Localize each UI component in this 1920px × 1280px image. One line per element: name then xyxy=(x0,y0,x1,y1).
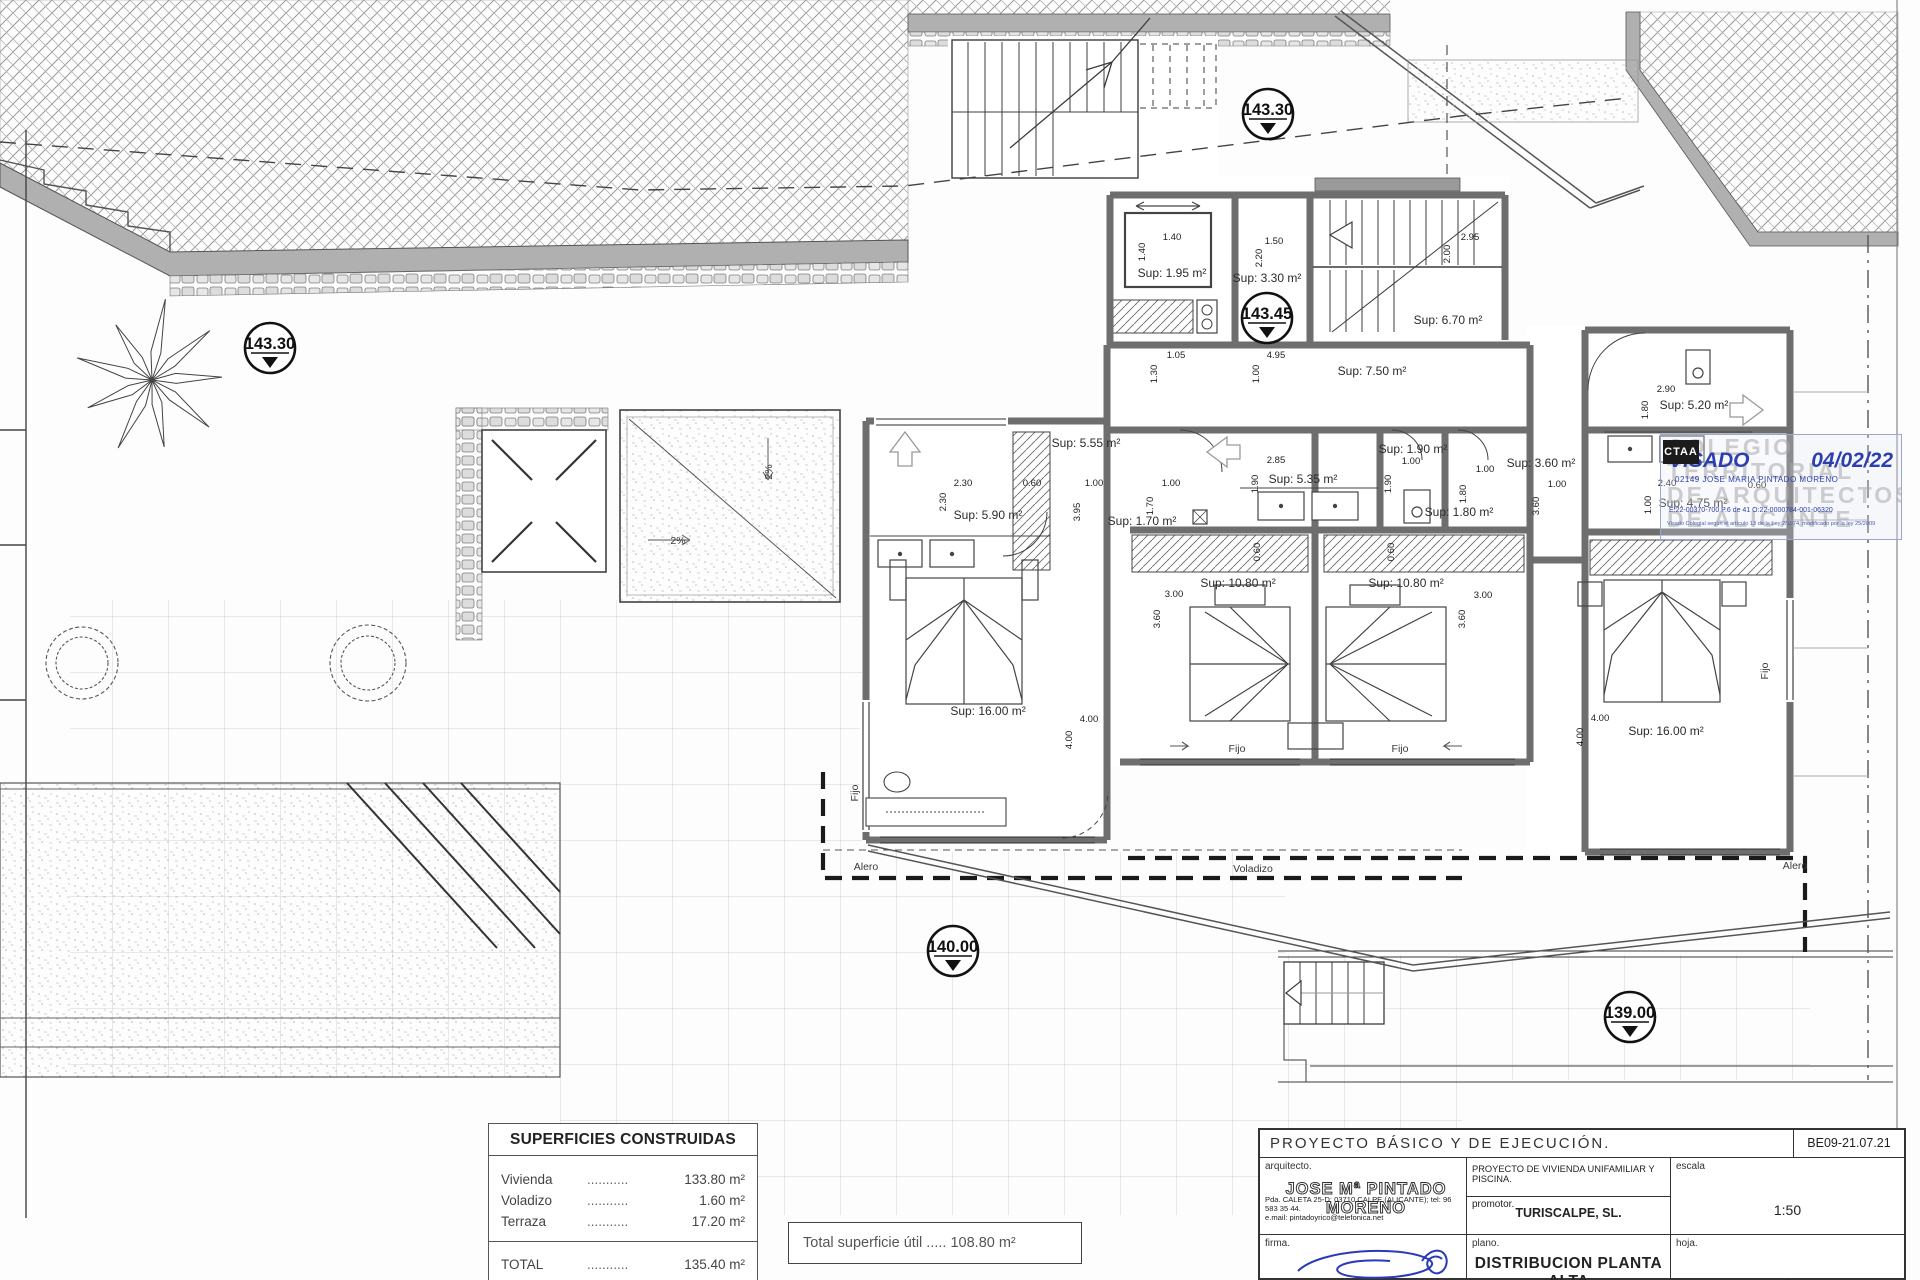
level-marker: 143.45 xyxy=(1242,293,1292,343)
level-marker-value: 139.00 xyxy=(1605,1004,1655,1022)
dimension-label: 1.00 xyxy=(1643,496,1654,515)
stamp-holder: 02149 JOSE MARIA PINTADO MORENO xyxy=(1675,475,1838,484)
firma-label: firma. xyxy=(1265,1238,1290,1249)
architect-address: Pda. CALETA 25-D; 03710 CALPE (ALICANTE)… xyxy=(1265,1195,1463,1213)
arquitecto-label: arquitecto. xyxy=(1265,1161,1312,1172)
dimension-label: 1.00 xyxy=(1251,365,1262,384)
promotor-name: TURISCALPE, SL. xyxy=(1467,1206,1670,1220)
row-value: 17.20 m² xyxy=(661,1214,745,1229)
room-area-label: Sup: 3.30 m² xyxy=(1233,271,1302,285)
plan-annotation-label: Fijo xyxy=(1392,743,1409,755)
visado-date: 04/02/22 xyxy=(1811,449,1893,473)
terrain-hatch-top-left xyxy=(0,0,908,296)
stamp-legal: Visado Colegial según el artículo 13 de … xyxy=(1667,521,1875,527)
architect-email: e.mail: pintadoyrico@telefonica.net xyxy=(1265,1213,1463,1222)
level-marker: 139.00 xyxy=(1605,992,1655,1042)
room-area-label: Sup: 5.55 m² xyxy=(1052,436,1121,450)
dimension-label: 3.60 xyxy=(1152,610,1163,629)
dimension-label: 2.95 xyxy=(1461,232,1480,243)
hoja-number: 9 xyxy=(1671,1275,1904,1280)
dimension-label: 1.05 xyxy=(1167,350,1186,361)
dimension-label: 4.95 xyxy=(1267,350,1286,361)
table-row: Terraza ........... 17.20 m² xyxy=(501,1214,745,1229)
floor-plan-sheet: Sup: 1.95 m²Sup: 3.30 m²Sup: 6.70 m²Sup:… xyxy=(0,0,1920,1280)
plan-annotation-label: Voladizo xyxy=(1233,863,1273,875)
dimension-label: 1.00 xyxy=(1085,478,1104,489)
level-marker-value: 140.00 xyxy=(928,938,978,956)
row-value: 1.60 m² xyxy=(661,1193,745,1208)
level-marker-value: 143.45 xyxy=(1242,305,1292,323)
plan-annotation-label: 2% xyxy=(670,535,685,547)
dimension-label: 0.60 xyxy=(1023,478,1042,489)
room-area-label: Sup: 1.80 m² xyxy=(1425,505,1494,519)
total-usable-box: Total superficie útil ..... 108.80 m² xyxy=(788,1222,1082,1264)
plan-annotation-label: Alero xyxy=(1783,860,1808,872)
project-desc: PROYECTO DE VIVIENDA UNIFAMILIAR Y PISCI… xyxy=(1472,1164,1667,1184)
ground-texture-area xyxy=(0,783,560,1077)
dimension-label: 2.00 xyxy=(1442,245,1453,264)
stamp-codes: E:22-00370-700 P.6 de 41 O:22-0000784-00… xyxy=(1669,507,1833,514)
level-marker-value: 143.30 xyxy=(1243,101,1293,119)
dimension-label: 0.60 xyxy=(1386,543,1397,562)
level-marker: 143.30 xyxy=(245,323,295,373)
room-area-label: Sup: 10.80 m² xyxy=(1368,576,1443,590)
project-type: PROYECTO BÁSICO Y DE EJECUCIÓN. xyxy=(1260,1130,1793,1157)
dimension-label: 2.85 xyxy=(1267,455,1286,466)
dimension-label: 4.00 xyxy=(1064,731,1075,750)
dimension-label: 1.30 xyxy=(1149,365,1160,384)
row-dots: ........... xyxy=(587,1172,661,1187)
plan-annotation-label: Alero xyxy=(854,861,879,873)
table-row: Voladizo ........... 1.60 m² xyxy=(501,1193,745,1208)
dimension-label: 1.40 xyxy=(1137,243,1148,262)
dimension-label: 1.90 xyxy=(1383,475,1394,494)
room-area-label: Sup: 1.90 m² xyxy=(1379,442,1448,456)
room-area-label: Sup: 1.95 m² xyxy=(1138,266,1207,280)
row-name: Terraza xyxy=(501,1214,587,1229)
dimension-label: 1.80 xyxy=(1458,485,1469,504)
upper-terrace-stipple xyxy=(1408,60,1638,122)
dimension-label: 4.00 xyxy=(1591,713,1610,724)
room-area-label: Sup: 6.70 m² xyxy=(1414,313,1483,327)
dimension-label: 1.40 xyxy=(1163,232,1182,243)
terrace-stipple xyxy=(620,410,840,602)
dimension-label: 3.95 xyxy=(1072,503,1083,522)
plan-annotation-label: Fijo xyxy=(1759,662,1771,679)
dimension-label: 1.50 xyxy=(1265,236,1284,247)
stamp-watermark-line: DE ARQUITECTOS xyxy=(1667,483,1902,507)
total-name: TOTAL xyxy=(501,1257,587,1272)
dimension-label: 2.30 xyxy=(938,493,949,512)
room-area-label: Sup: 5.20 m² xyxy=(1660,398,1729,412)
dimension-label: 3.60 xyxy=(1531,497,1542,516)
row-name: Vivienda xyxy=(501,1172,587,1187)
plan-annotation-label: Fijo xyxy=(1229,743,1246,755)
room-area-label: Sup: 5.90 m² xyxy=(954,508,1023,522)
balcony-rail xyxy=(1315,178,1460,191)
level-marker: 143.30 xyxy=(1243,89,1293,139)
dimension-label: 1.00 xyxy=(1402,456,1421,467)
dimension-label: 4.00 xyxy=(1575,728,1586,747)
escala-value: 1:50 xyxy=(1671,1202,1904,1218)
room-area-label: Sup: 16.00 m² xyxy=(950,704,1025,718)
terrain-hatch-top-right xyxy=(1626,12,1898,246)
sheet-code: BE09-21.07.21 xyxy=(1793,1130,1904,1157)
row-dots: ........... xyxy=(587,1214,661,1229)
row-dots: ........... xyxy=(587,1193,661,1208)
row-value: 133.80 m² xyxy=(661,1172,745,1187)
dimension-label: 1.80 xyxy=(1640,401,1651,420)
dimension-label: 1.70 xyxy=(1145,497,1156,516)
total-usable-text: Total superficie útil ..... 108.80 m² xyxy=(803,1235,1016,1251)
room-area-label: Sup: 3.60 m² xyxy=(1507,456,1576,470)
dimension-label: 0.60 xyxy=(1252,543,1263,562)
floor-plan-drawing: Sup: 1.95 m²Sup: 3.30 m²Sup: 6.70 m²Sup:… xyxy=(0,0,1920,1280)
plano-title: DISTRIBUCION PLANTA ALTA xyxy=(1467,1255,1670,1280)
dimension-label: 1.90 xyxy=(1250,475,1261,494)
plan-annotation-label: 2% xyxy=(763,464,775,479)
dimension-label: 4.00 xyxy=(1080,714,1099,725)
palm-tree xyxy=(75,298,222,451)
surfaces-table-title: SUPERFICIES CONSTRUIDAS xyxy=(489,1124,757,1156)
dimension-label: 3.60 xyxy=(1457,610,1468,629)
dimension-label: 2.90 xyxy=(1657,384,1676,395)
plan-annotation-label: Fijo xyxy=(849,784,861,801)
row-name: Voladizo xyxy=(501,1193,587,1208)
title-block: PROYECTO BÁSICO Y DE EJECUCIÓN. BE09-21.… xyxy=(1258,1128,1906,1280)
table-row: Vivienda ........... 133.80 m² xyxy=(501,1172,745,1187)
dimension-label: 1.00 xyxy=(1162,478,1181,489)
room-area-label: Sup: 16.00 m² xyxy=(1628,724,1703,738)
dimension-label: 1.00 xyxy=(1476,464,1495,475)
table-total-row: TOTAL ........... 135.40 m² xyxy=(501,1257,745,1272)
room-area-label: Sup: 5.35 m² xyxy=(1269,472,1338,486)
room-area-label: Sup: 7.50 m² xyxy=(1338,364,1407,378)
total-dots: ........... xyxy=(587,1257,661,1272)
room-area-label: Sup: 10.80 m² xyxy=(1200,576,1275,590)
plano-label: plano. xyxy=(1472,1238,1499,1249)
total-value: 135.40 m² xyxy=(661,1257,745,1272)
dimension-label: 2.30 xyxy=(954,478,973,489)
dimension-label: 2.20 xyxy=(1254,249,1265,268)
room-area-label: Sup: 1.70 m² xyxy=(1108,514,1177,528)
ctaa-logo: CTAA xyxy=(1663,440,1699,464)
level-marker-value: 143.30 xyxy=(245,335,295,353)
dimension-label: 3.00 xyxy=(1165,589,1184,600)
level-marker: 140.00 xyxy=(928,926,978,976)
dimension-label: 1.00 xyxy=(1548,479,1567,490)
surfaces-table: SUPERFICIES CONSTRUIDAS Vivienda .......… xyxy=(488,1123,758,1280)
dimension-label: 3.00 xyxy=(1474,590,1493,601)
hoja-label: hoja. xyxy=(1676,1238,1698,1249)
escala-label: escala xyxy=(1676,1161,1705,1172)
architect-signature xyxy=(1290,1245,1450,1280)
